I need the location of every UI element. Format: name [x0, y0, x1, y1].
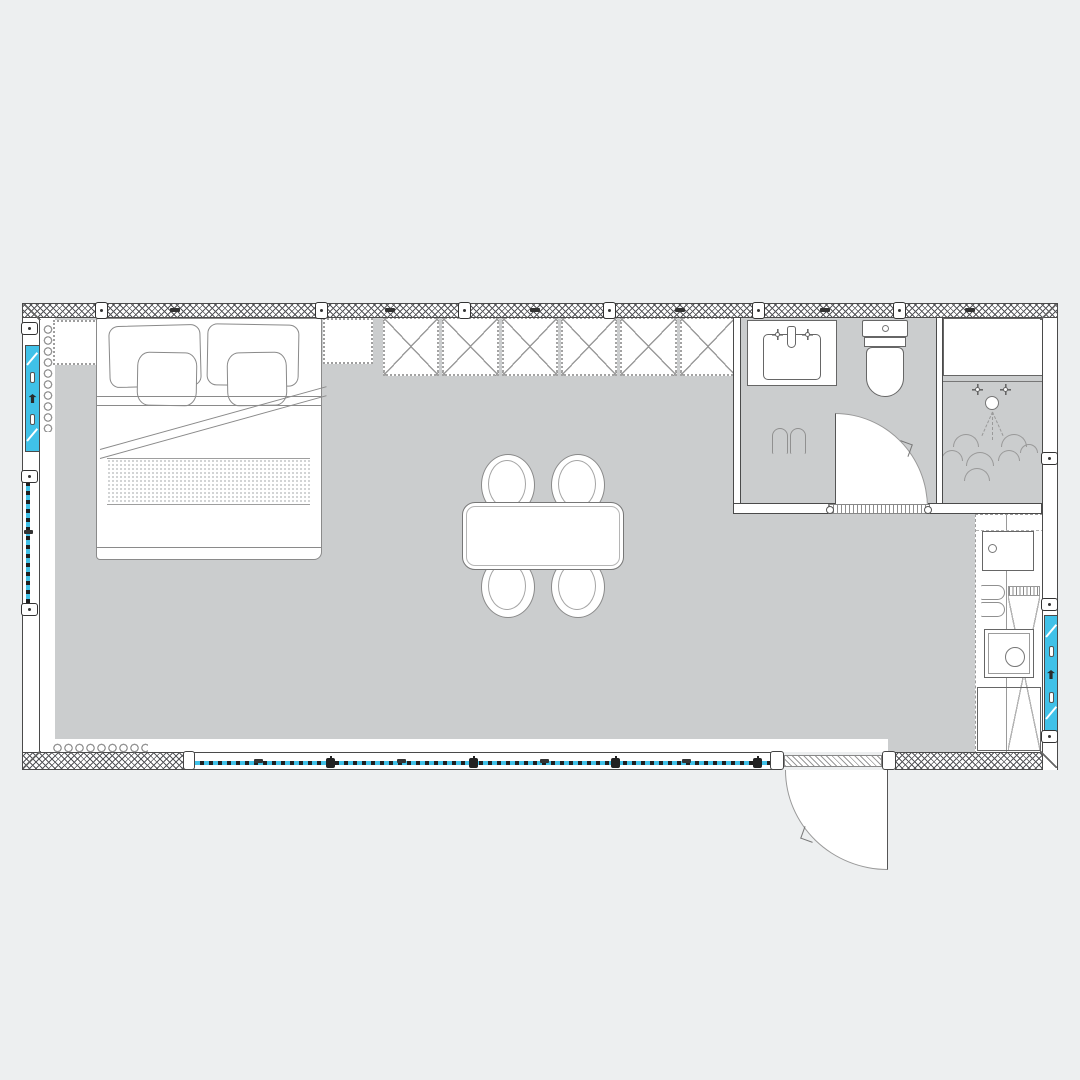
window-sash-icon [1047, 670, 1055, 679]
wardrobe [383, 317, 736, 376]
wall-tick [170, 308, 180, 312]
shower-tray [943, 318, 1043, 376]
wall-joint [21, 470, 38, 483]
wall-tick [530, 308, 540, 312]
window-mullion [753, 758, 762, 768]
slippers-bathroom [772, 428, 808, 455]
glass-slash [26, 352, 37, 365]
toilet-bowl [866, 347, 904, 397]
floor-margin-bottom [55, 739, 888, 752]
entry-door-threshold [784, 755, 882, 767]
window-tick [397, 759, 406, 763]
slipper [981, 585, 1005, 600]
threshold-endcap [826, 506, 834, 514]
window-left-fixed [25, 345, 40, 452]
flush-button [882, 325, 889, 332]
bathroom-wall-left [733, 315, 741, 514]
corner-bottom-left [23, 751, 41, 768]
wardrobe-section [502, 317, 558, 376]
window-handle [1049, 692, 1054, 703]
wall-bottom-right-segment [895, 752, 1043, 770]
cooktop-knob [988, 544, 997, 553]
window-tick [540, 759, 549, 763]
wall-joint [21, 603, 38, 616]
window-left-band-mark [24, 530, 33, 534]
glass-slash [1045, 624, 1056, 637]
tall-unit-vent-strip [1008, 586, 1040, 596]
wall-tick [675, 308, 685, 312]
wall-tick [385, 308, 395, 312]
entry-door-jamb-right [882, 751, 896, 770]
wall-tick [820, 308, 830, 312]
threshold-endcap [924, 506, 932, 514]
washbasin-vanity [747, 320, 837, 386]
chair-backrest-arc [558, 460, 596, 508]
floor-corridor [888, 513, 975, 752]
wardrobe-section [680, 317, 736, 376]
kitchen-sink [984, 629, 1034, 678]
bathroom-shower-divider-wall [936, 315, 943, 514]
wall-joint [752, 302, 765, 319]
shower-tray-edge-line [943, 381, 1043, 382]
bathroom-wall-bottom-right [928, 503, 1042, 514]
wardrobe-section [561, 317, 617, 376]
shower-head-icon [985, 396, 999, 410]
floor-plan-canvas [0, 0, 1080, 1080]
wall-joint [21, 322, 38, 335]
window-handle [30, 414, 35, 425]
wall-joint [458, 302, 471, 319]
wall-tick [965, 308, 975, 312]
wall-joint [315, 302, 328, 319]
bathroom-door-threshold [828, 504, 930, 514]
pillow-right [227, 351, 288, 406]
toilet-cistern-lip [864, 337, 906, 347]
window-band-bottom [190, 752, 775, 770]
wall-joint [1041, 730, 1058, 743]
glass-slash [26, 428, 37, 441]
slipper [772, 428, 788, 454]
window-sash-icon [29, 394, 37, 403]
wall-joint [1041, 598, 1058, 611]
glass-slash [1045, 706, 1056, 719]
wall-joint [893, 302, 906, 319]
shower-valve-icon [1000, 384, 1011, 395]
slipper [981, 602, 1005, 617]
window-handle [1049, 646, 1054, 657]
entry-door-swing [785, 770, 888, 870]
window-handle [30, 372, 35, 383]
chair-backrest-arc [488, 460, 526, 508]
bed-foot-line [97, 547, 321, 548]
toilet [862, 320, 908, 398]
radiator-left-coil [41, 324, 55, 432]
window-left-dashed-band [26, 482, 30, 605]
wall-joint [1041, 452, 1058, 465]
spray-line [992, 412, 993, 440]
valve-icon [802, 329, 813, 340]
radiator-bottom-coil [52, 741, 148, 755]
window-band-jamb [183, 751, 195, 770]
wardrobe-section [620, 317, 676, 376]
base-cabinet [977, 687, 1041, 751]
window-mullion [326, 758, 335, 768]
sink-drain [1005, 647, 1025, 667]
wardrobe-section [383, 317, 439, 376]
window-mullion [469, 758, 478, 768]
corner-top-left [23, 304, 41, 320]
double-bed [96, 318, 322, 560]
swing-direction-arrow [800, 826, 817, 843]
bed-runner-dotted [107, 458, 310, 505]
bathroom-wall-bottom-left [733, 503, 836, 514]
corner-top-right [1040, 304, 1057, 320]
wall-joint [603, 302, 616, 319]
nightstand-right [323, 318, 373, 364]
slippers-kitchen [981, 585, 1006, 618]
corner-bottom-right [1040, 751, 1057, 768]
shower-valve-icon [972, 384, 983, 395]
entry-door-jamb-left [770, 751, 784, 770]
window-tick [682, 759, 691, 763]
window-tick [254, 759, 263, 763]
wardrobe-section [442, 317, 498, 376]
dining-table [462, 502, 624, 570]
pillow-left [137, 351, 198, 406]
window-mullion [611, 758, 620, 768]
cooktop [982, 531, 1034, 571]
wall-joint [95, 302, 108, 319]
nightstand-left [53, 320, 99, 365]
window-right-fixed [1044, 615, 1058, 733]
slipper [790, 428, 806, 454]
faucet-icon [787, 326, 796, 348]
valve-icon [772, 329, 783, 340]
